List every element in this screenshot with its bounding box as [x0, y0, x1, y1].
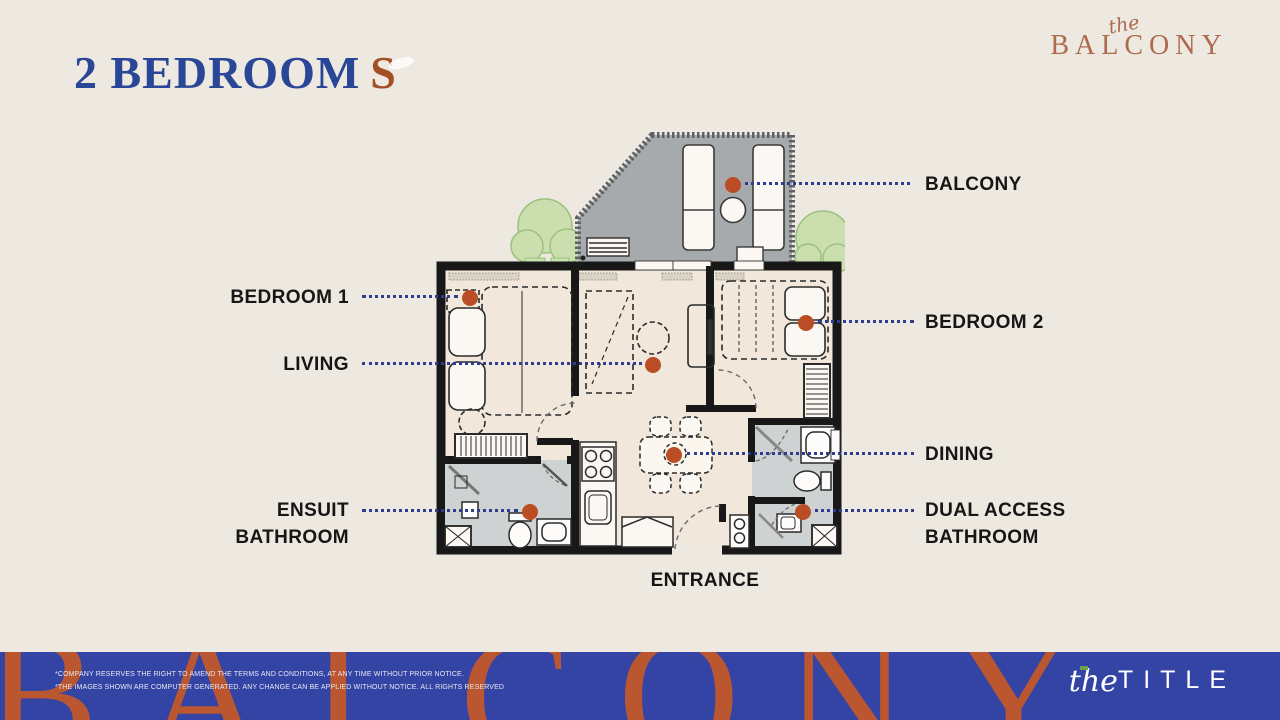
label-living: LIVING: [99, 354, 349, 376]
tv: [708, 320, 712, 354]
title-logo-name: TITLE: [1118, 666, 1236, 694]
laundry-appliance: [730, 515, 749, 548]
dining-chair: [650, 417, 671, 436]
floor-plan: [425, 124, 845, 556]
balcony-ac-unit: [737, 247, 763, 262]
leader-dining: [687, 452, 914, 455]
title-suffix: S: [370, 47, 397, 98]
leader-ensuit: [362, 509, 518, 512]
pillow: [449, 308, 485, 356]
pillow: [449, 362, 485, 410]
bedroom2-door-leaf: [718, 405, 756, 412]
room-marker-bedroom2: [798, 315, 814, 331]
label-ensuit-line1: ENSUIT: [99, 500, 349, 522]
label-dual-line2: BATHROOM: [925, 527, 1039, 549]
entrance-opening: [672, 543, 722, 556]
balcony-table: [721, 198, 746, 223]
label-dining: DINING: [925, 444, 994, 466]
title-logo-script: the: [1069, 664, 1118, 699]
leader-bedroom2: [818, 320, 914, 323]
room-marker-dual: [795, 504, 811, 520]
room-marker-ensuit: [522, 504, 538, 520]
label-balcony: BALCONY: [925, 174, 1022, 196]
wardrobe2: [804, 364, 830, 418]
leader-dual: [815, 509, 914, 512]
leader-living: [362, 362, 642, 365]
title-logo: theTITLE: [1069, 664, 1236, 699]
disclaimer-line-2: *THE IMAGES SHOWN ARE COMPUTER GENERATED…: [55, 681, 504, 694]
leader-bedroom1: [362, 295, 458, 298]
label-entrance: ENTRANCE: [590, 570, 820, 592]
label-ensuit-line2: BATHROOM: [99, 527, 349, 549]
page-title: 2 BEDROOMS: [74, 46, 397, 99]
balcony-bench: [587, 238, 629, 256]
dining-chair: [680, 474, 701, 493]
balcony-drain: [581, 256, 586, 261]
title-main: 2 BEDROOM: [74, 47, 360, 98]
toilet-tank: [821, 472, 831, 490]
tree-left: [511, 199, 584, 263]
ac-ledge-right: [812, 525, 837, 547]
footer-band: BALCONY *COMPANY RESERVES THE RIGHT TO A…: [0, 652, 1280, 720]
disclaimer-line-1: *COMPANY RESERVES THE RIGHT TO AMEND THE…: [55, 668, 504, 681]
dining-chair: [650, 474, 671, 493]
room-marker-dining: [666, 447, 682, 463]
footer-disclaimer: *COMPANY RESERVES THE RIGHT TO AMEND THE…: [55, 668, 504, 694]
label-dual-line1: DUAL ACCESS: [925, 500, 1066, 522]
balcony-logo: the BALCONY: [1034, 14, 1244, 62]
bedroom1-door-leaf: [537, 438, 573, 445]
toilet-bowl: [509, 522, 531, 548]
label-bedroom1: BEDROOM 1: [99, 287, 349, 309]
shoe-bench: [622, 517, 673, 547]
room-marker-bedroom1: [462, 290, 478, 306]
dining-chair: [680, 417, 701, 436]
room-marker-balcony: [725, 177, 741, 193]
label-bedroom2: BEDROOM 2: [925, 312, 1044, 334]
title-logo-green-accent: [1080, 666, 1088, 670]
balcony-sliding-doors: [635, 261, 764, 270]
leader-balcony: [745, 182, 910, 185]
slide: 2 BEDROOMS the BALCONY: [0, 0, 1280, 720]
wardrobe1: [455, 434, 527, 458]
room-marker-living: [645, 357, 661, 373]
window-slit: [831, 430, 840, 460]
toilet-bowl: [794, 471, 820, 491]
ac-ledge-left: [445, 526, 471, 547]
